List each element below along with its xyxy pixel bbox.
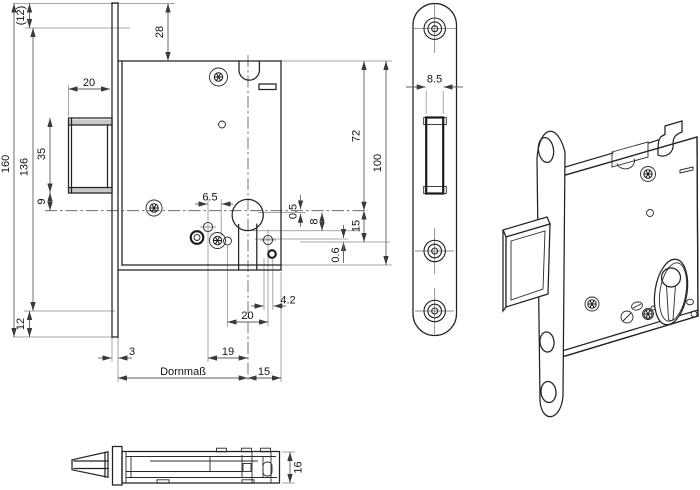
latch-bolt (69, 118, 113, 193)
dim-case-front: 15 (248, 366, 281, 378)
dim-bolt-to-center: 9 (36, 193, 50, 211)
bottom-view: 16 (72, 447, 305, 486)
dim-label-case-depth: 16 (293, 461, 305, 473)
dim-plate-thickness: 3 (98, 346, 135, 358)
dim-case-height-upper: 72 (351, 61, 365, 211)
lock-case (118, 61, 281, 270)
dim-label-bottom-hole-offset: 12 (15, 318, 27, 330)
dim-label-latch-slot-width: 8.5 (427, 74, 442, 86)
dim-slot-offset: 4.2 (251, 295, 296, 307)
dim-label-pin-offset: 6.5 (202, 192, 217, 204)
latch-slot (424, 118, 447, 194)
dim-lower-offset: 15 (351, 211, 365, 242)
faceplate-view: 8.5 (406, 4, 463, 336)
top-slot (259, 84, 276, 90)
dim-latch-step: 0.5 (288, 195, 301, 227)
bottom-faceplate-bar (113, 447, 123, 486)
dim-label-case-height-upper: 72 (351, 130, 363, 142)
grommet-hole (191, 231, 204, 244)
dim-label-bolt-width: 20 (83, 77, 95, 89)
dim-follower-offset: 8 (309, 213, 323, 231)
dim-pin-offset: 6.5 (195, 192, 233, 205)
screw-icon (146, 200, 162, 216)
dim-latch-slot-width: 8.5 (406, 74, 463, 115)
faceplate-strip (112, 3, 118, 337)
hole-crosshairs (413, 4, 457, 335)
dim-label-latch-step: 0.5 (288, 204, 300, 219)
technical-drawing-canvas: 160 (12) 136 12 35 9 (0, 0, 700, 490)
pin-ring (268, 250, 276, 258)
dim-label-bolt-face-height: 35 (36, 148, 48, 160)
lock-drawing-svg: 160 (12) 136 12 35 9 (0, 0, 700, 490)
screw-icon (210, 68, 228, 86)
dim-label-pin-span: 20 (241, 310, 253, 322)
dim-label-hole-span: 136 (19, 158, 31, 176)
pin-hole (224, 237, 232, 245)
dim-label-backset: Dornmaß (160, 366, 206, 378)
dim-label-lower-offset: 15 (351, 220, 363, 232)
bottom-case-body (122, 448, 280, 483)
dim-bolt-width: 20 (69, 77, 111, 89)
dim-backset: Dornmaß (118, 366, 248, 378)
dim-hole-span: 136 (19, 28, 34, 311)
dim-pin-backset: 19 (208, 346, 248, 358)
dim-bottom-hole-offset: 12 (15, 311, 30, 337)
dim-pin-span: 20 (228, 310, 269, 322)
dim-label-case-height: 100 (372, 154, 384, 172)
dim-case-top-offset: 28 (154, 4, 168, 62)
front-section-view: 160 (12) 136 12 35 9 (0, 3, 392, 382)
isometric-view (503, 121, 698, 417)
dim-case-depth: 16 (282, 452, 305, 483)
dim-label-pin-backset: 19 (222, 346, 234, 358)
dim-label-plate-thickness: 3 (129, 346, 135, 358)
dim-label-total-height: 160 (0, 155, 12, 173)
dim-label-top-hole-offset: (12) (15, 6, 27, 26)
dim-label-play: 0.6 (330, 247, 342, 262)
small-hole (219, 121, 226, 128)
top-notch-cutout (239, 61, 259, 80)
centerlines (45, 55, 368, 381)
dim-case-height: 100 (372, 61, 386, 265)
dim-label-case-top-offset: 28 (154, 26, 166, 38)
dim-total-height: 160 (0, 4, 14, 338)
dim-label-slot-offset: 4.2 (280, 295, 295, 307)
dim-label-bolt-to-center: 9 (36, 198, 48, 204)
dim-bolt-face-height: 35 (36, 118, 50, 193)
bottom-latch-tip (72, 452, 108, 477)
faceplate-outline (413, 4, 457, 336)
dim-top-hole-offset: (12) (15, 4, 30, 29)
dim-label-case-front: 15 (258, 366, 270, 378)
front-view-dimensions: 160 (12) 136 12 35 9 (0, 4, 386, 379)
dim-label-follower-offset: 8 (309, 218, 321, 224)
